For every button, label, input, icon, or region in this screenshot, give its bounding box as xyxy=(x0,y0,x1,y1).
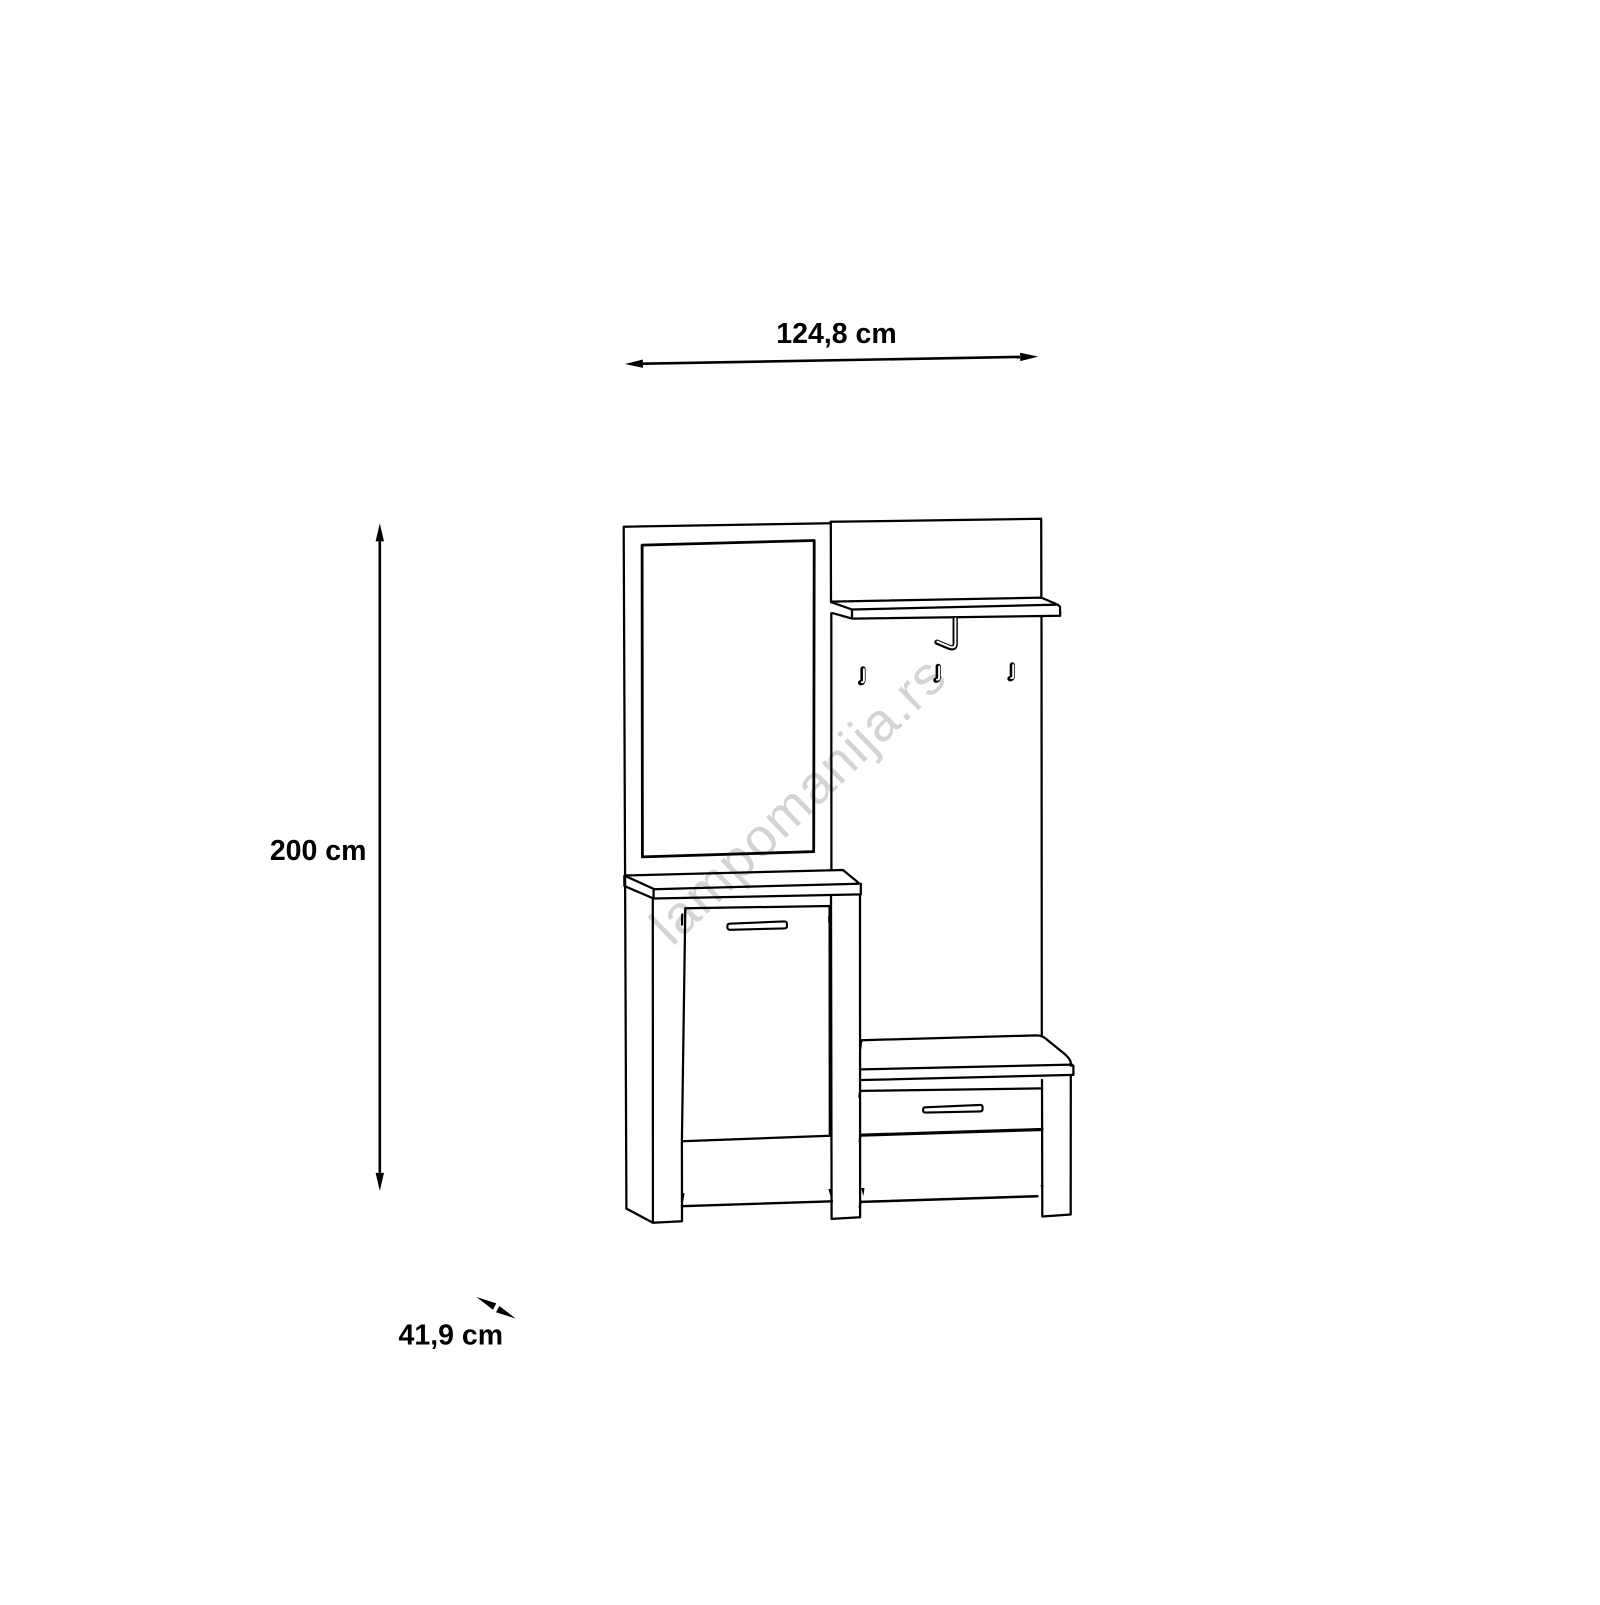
svg-text:41,9 cm: 41,9 cm xyxy=(399,1320,504,1352)
svg-text:200 cm: 200 cm xyxy=(270,835,367,867)
svg-text:124,8 cm: 124,8 cm xyxy=(776,318,896,350)
